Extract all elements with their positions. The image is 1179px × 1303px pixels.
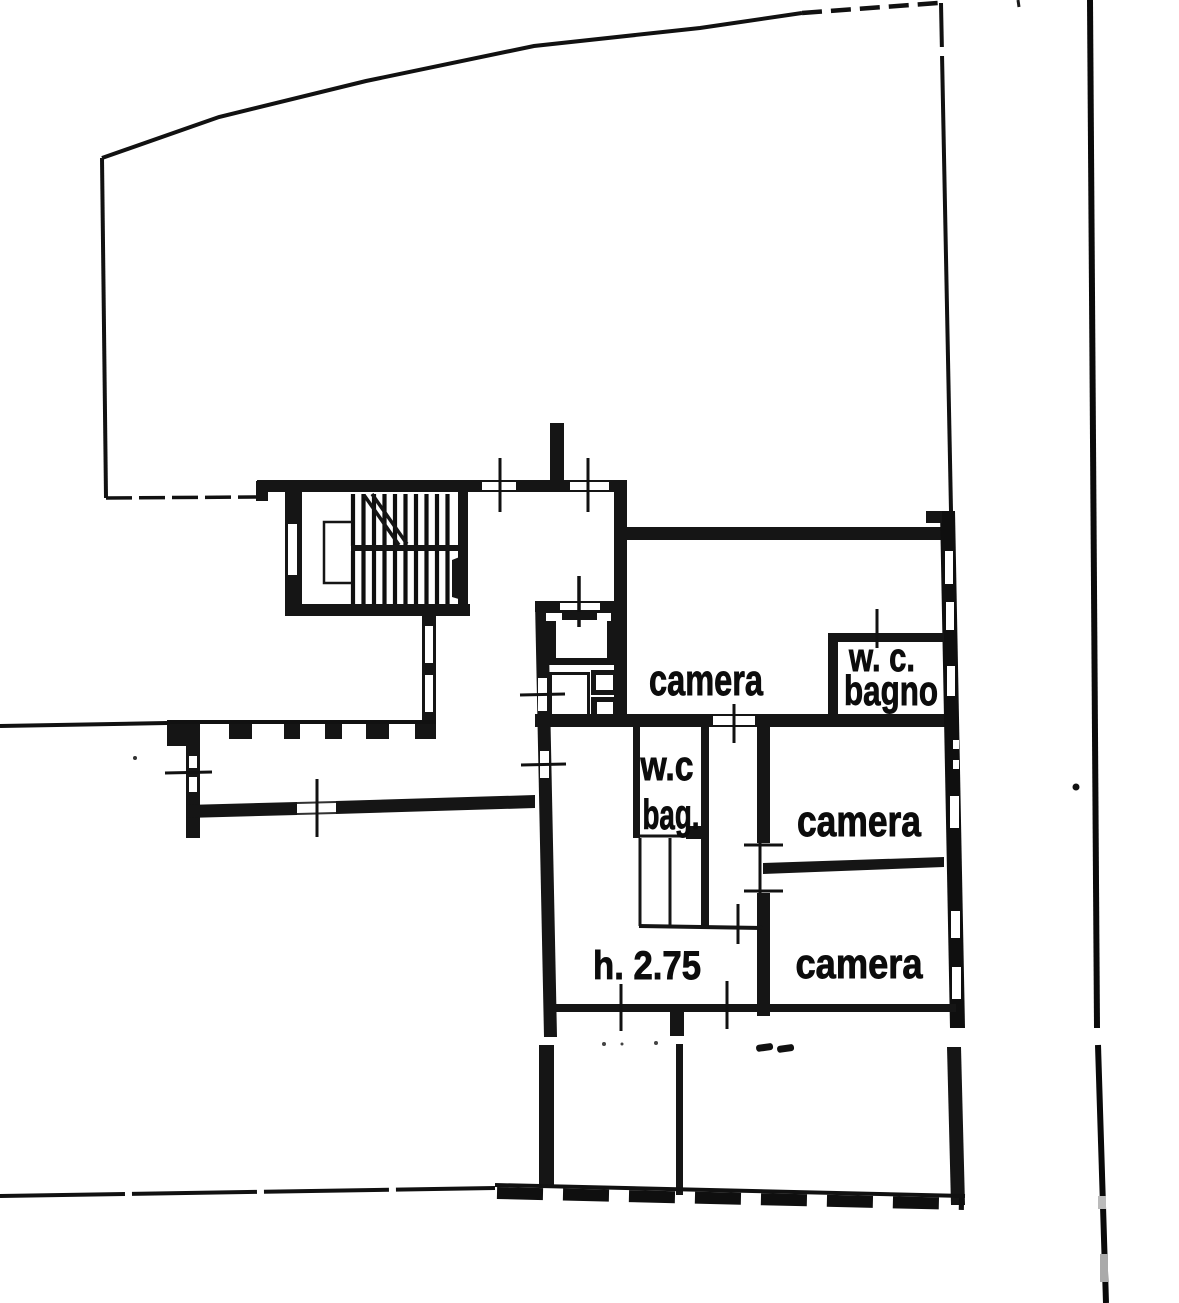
svg-text:w.c: w.c bbox=[640, 742, 694, 789]
svg-text:camera: camera bbox=[796, 940, 924, 987]
svg-text:h. 2.75: h. 2.75 bbox=[593, 944, 701, 988]
svg-text:camera: camera bbox=[797, 797, 921, 846]
svg-text:bagno: bagno bbox=[844, 667, 938, 714]
svg-text:camera: camera bbox=[649, 656, 763, 705]
svg-text:bag.: bag. bbox=[643, 791, 700, 838]
